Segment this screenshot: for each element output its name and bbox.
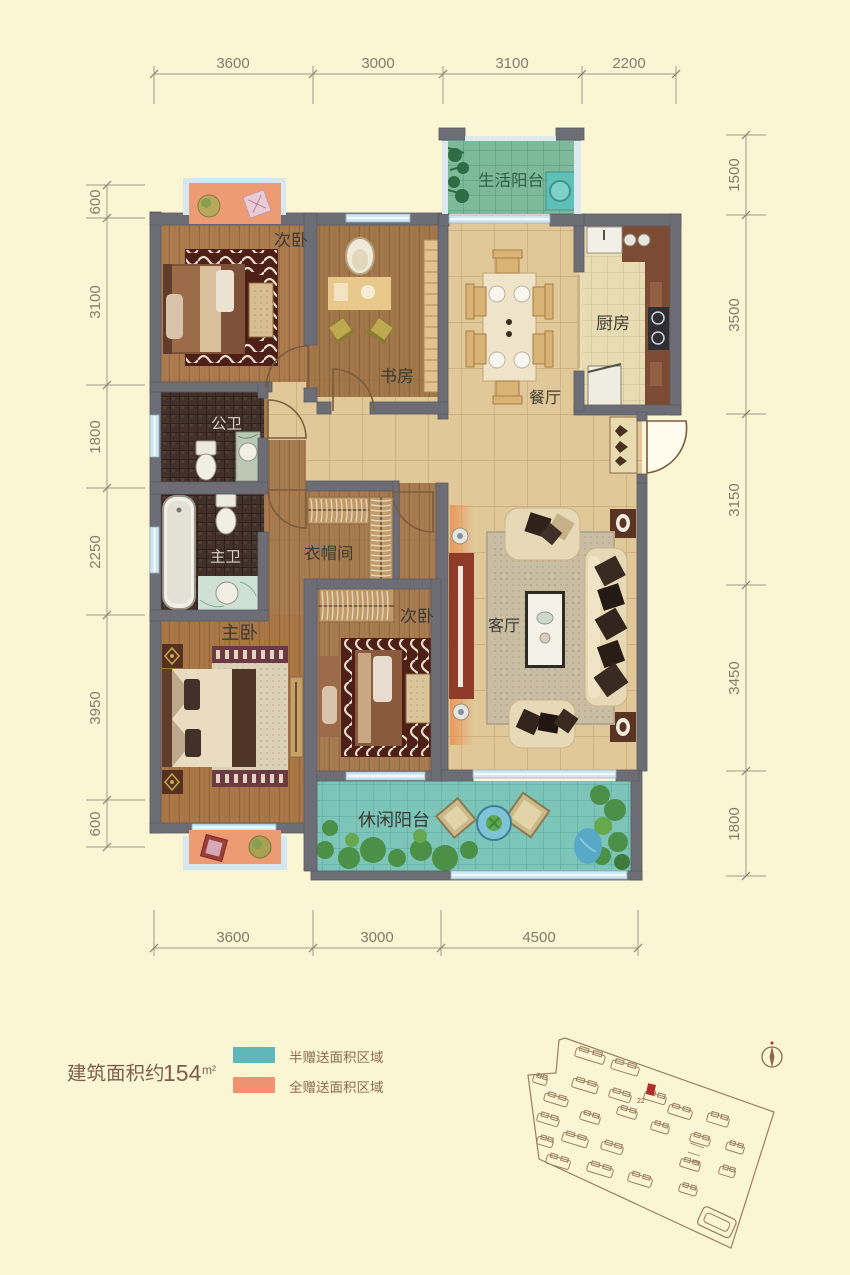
svg-text:1800: 1800 xyxy=(87,420,104,453)
svg-text:600: 600 xyxy=(87,811,104,836)
svg-text:2200: 2200 xyxy=(612,55,645,72)
svg-text:3150: 3150 xyxy=(726,483,743,516)
svg-text:2250: 2250 xyxy=(87,535,104,568)
svg-text:1800: 1800 xyxy=(726,807,743,840)
svg-text:4500: 4500 xyxy=(522,929,555,946)
svg-text:3450: 3450 xyxy=(726,661,743,694)
svg-text:3100: 3100 xyxy=(495,55,528,72)
svg-text:22: 22 xyxy=(637,1098,645,1105)
svg-text:m²: m² xyxy=(202,1063,216,1077)
svg-text:154: 154 xyxy=(163,1060,202,1086)
svg-text:3600: 3600 xyxy=(216,55,249,72)
svg-text:3600: 3600 xyxy=(216,929,249,946)
svg-text:3000: 3000 xyxy=(361,55,394,72)
svg-text:3950: 3950 xyxy=(87,691,104,724)
svg-text:3100: 3100 xyxy=(87,285,104,318)
svg-text:3000: 3000 xyxy=(360,929,393,946)
svg-text:1500: 1500 xyxy=(726,158,743,191)
svg-text:3500: 3500 xyxy=(726,298,743,331)
svg-text:600: 600 xyxy=(87,189,104,214)
